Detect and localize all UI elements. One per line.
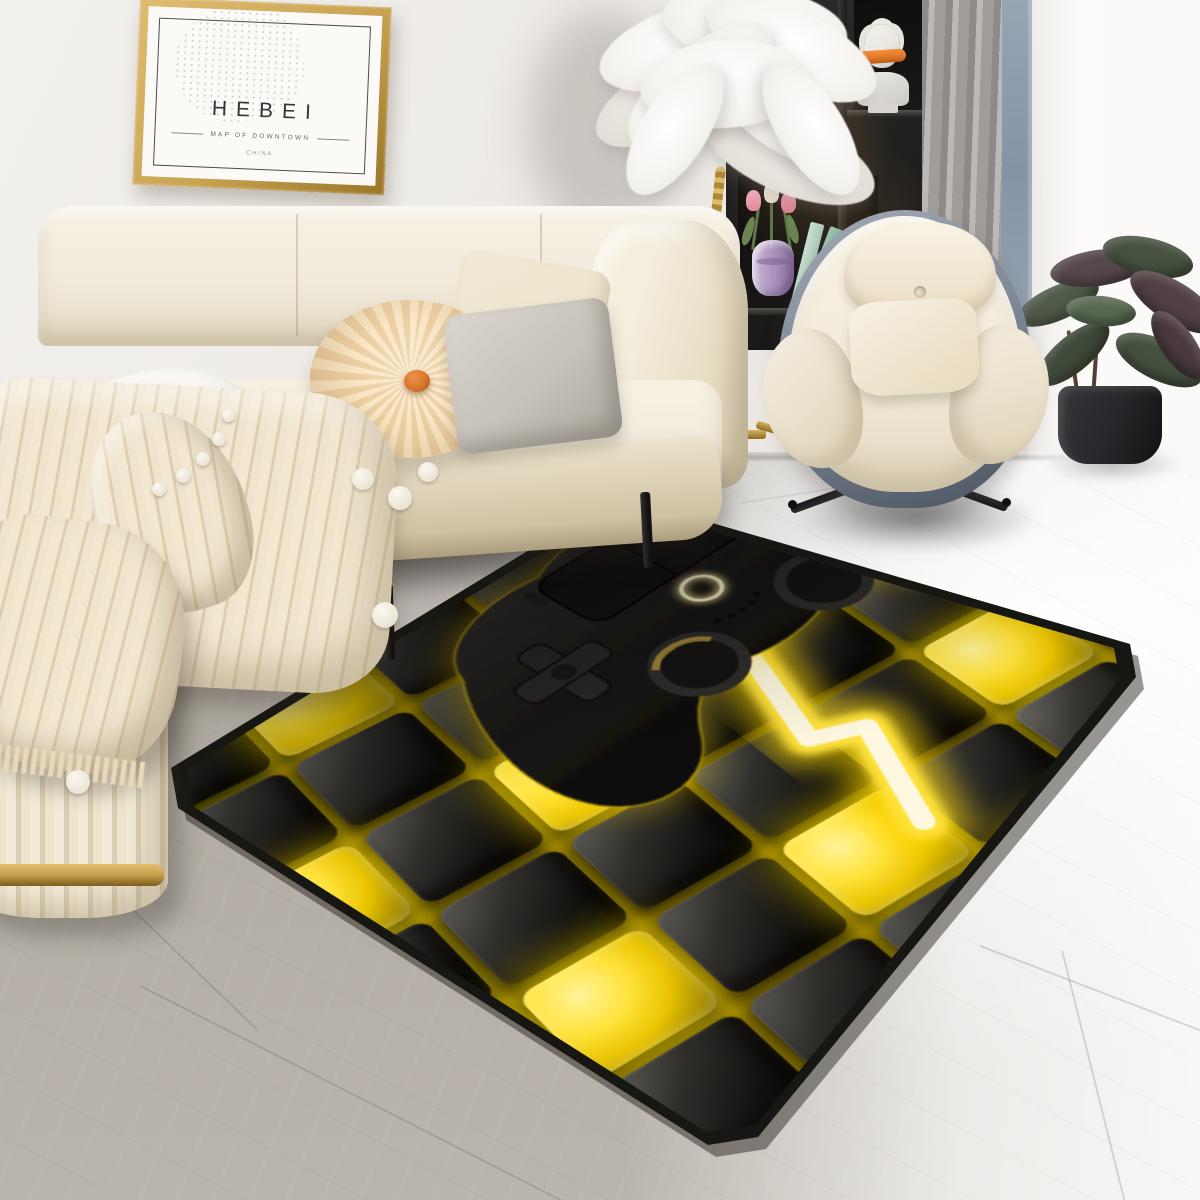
chair-lumbar-pillow [848, 297, 981, 398]
bust-plinth [868, 104, 898, 113]
chair-caster [1002, 498, 1011, 507]
throw-pompom [418, 462, 438, 482]
pompom [222, 409, 235, 422]
pompom [176, 468, 191, 483]
wall-art-mat: HEBEI MAP OF DOWNTOWN CHINA [142, 6, 383, 186]
throw-pompom [388, 486, 412, 510]
stool-gold-band [0, 864, 164, 886]
subtitle-rule-left [171, 132, 203, 134]
throw-pompom [66, 770, 90, 794]
floor-grout-line [980, 945, 1200, 1040]
throw-pompom [372, 602, 398, 628]
throw-pompom [352, 468, 374, 490]
pompom [212, 432, 226, 446]
wall-art-frame: HEBEI MAP OF DOWNTOWN CHINA [132, 0, 392, 195]
chair-caster [788, 500, 797, 509]
pompom [152, 482, 166, 496]
gray-square-pillow [442, 296, 624, 455]
glass-vase [752, 240, 794, 296]
living-room-scene: HEBEI MAP OF DOWNTOWN CHINA [0, 0, 1200, 1200]
subtitle-rule-right [317, 138, 349, 140]
plant-pot [1058, 386, 1162, 464]
pompom [196, 452, 210, 466]
floor-grout-line [1061, 951, 1131, 1200]
tulip-flower [746, 190, 761, 211]
sofa-back-seam [296, 214, 298, 336]
